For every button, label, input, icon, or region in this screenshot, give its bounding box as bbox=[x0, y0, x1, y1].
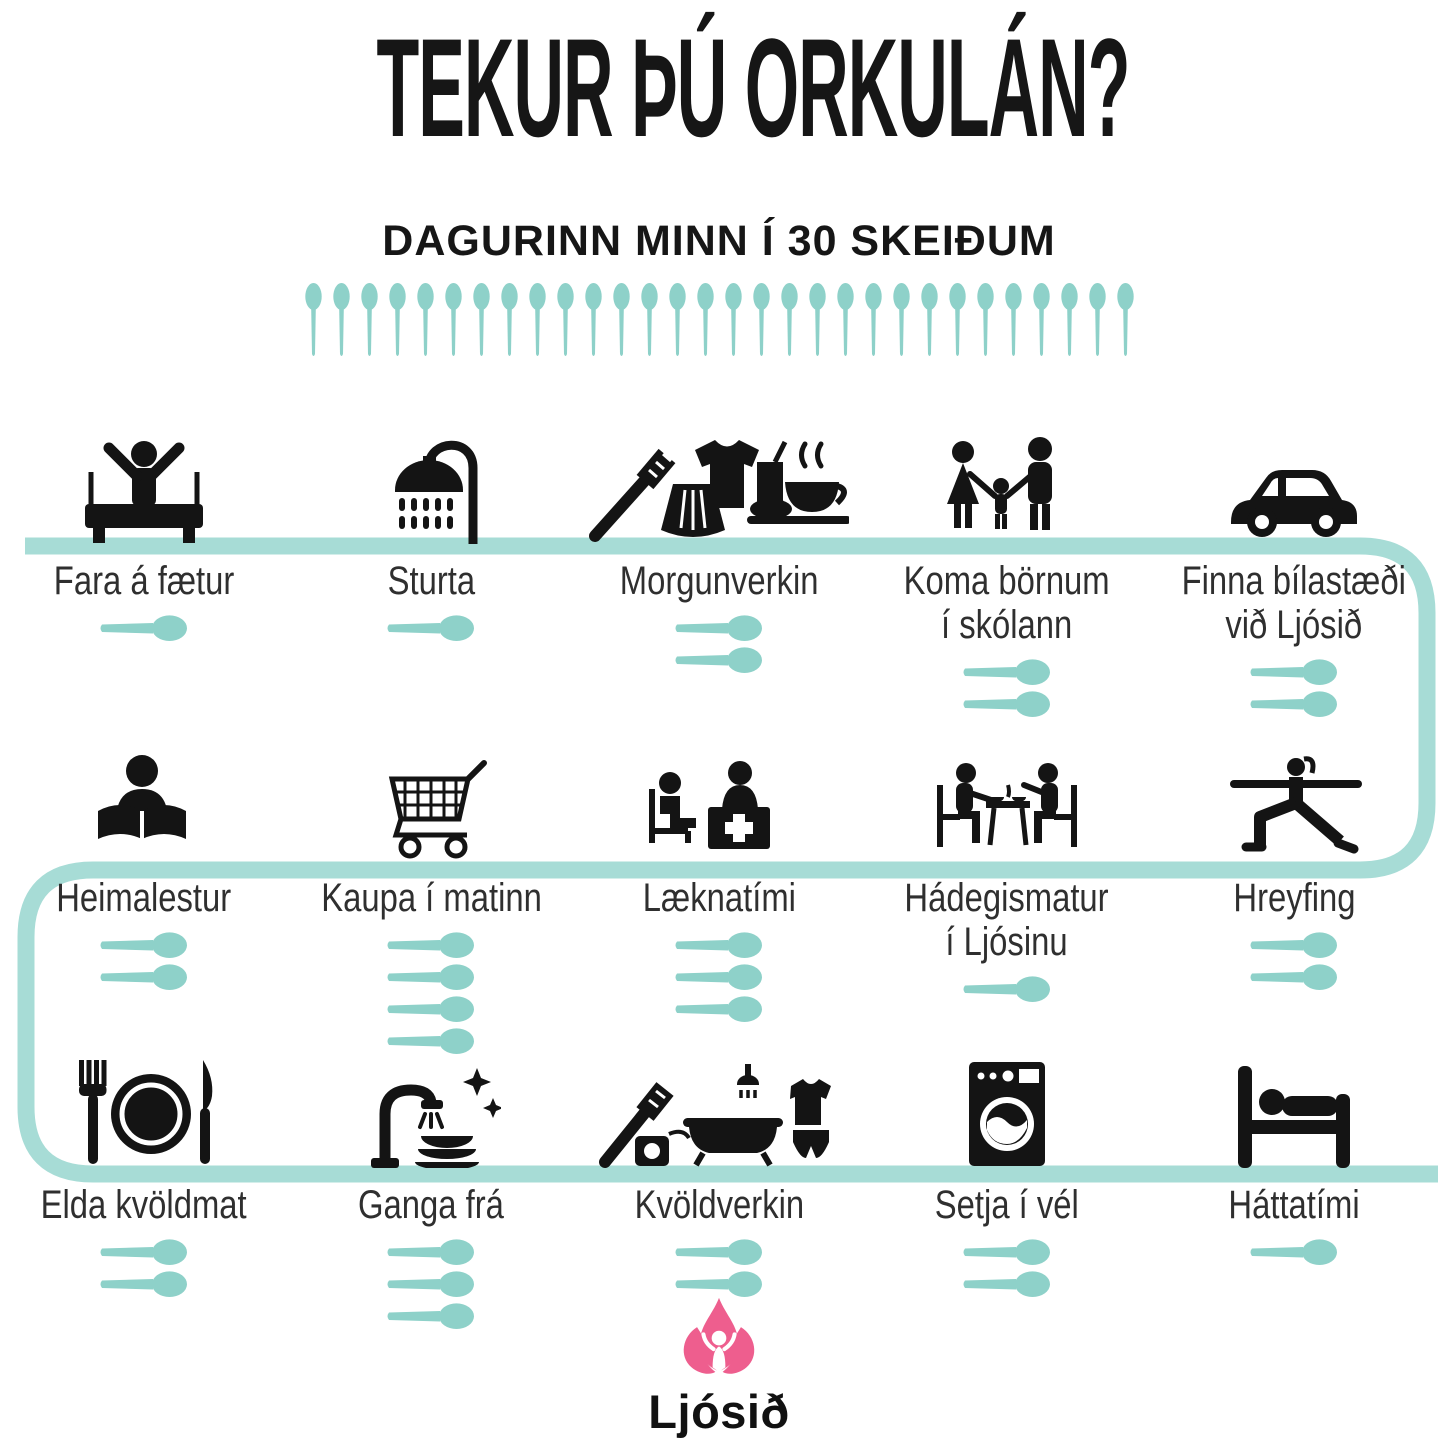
spoon-icon bbox=[387, 996, 475, 1023]
spoon-icon bbox=[921, 283, 938, 359]
page-title-text: TEKUR ÞÚ ORKULÁN? bbox=[376, 18, 1129, 158]
activity-item: Morgunverkin bbox=[575, 412, 863, 718]
activity-label: Ganga frá bbox=[358, 1183, 504, 1227]
spoon-icon bbox=[1089, 283, 1106, 359]
spoon-icon bbox=[697, 283, 714, 359]
spoon-icon bbox=[641, 283, 658, 359]
activity-label: Hádegismaturí Ljósinu bbox=[904, 876, 1108, 964]
activity-item: Sturta bbox=[288, 412, 576, 718]
spoon-icon bbox=[1250, 659, 1338, 686]
activity-label-line: Koma börnum bbox=[904, 559, 1110, 603]
activity-item: Elda kvöldmat bbox=[0, 1036, 288, 1330]
activity-label: Kaupa í matinn bbox=[321, 876, 542, 920]
wake-up-icon bbox=[81, 412, 207, 544]
spoon-icon bbox=[445, 283, 462, 359]
spoon-icon bbox=[753, 283, 770, 359]
spoon-icon bbox=[613, 283, 630, 359]
activity-label-line: Setja í vél bbox=[935, 1183, 1079, 1227]
spoon-count bbox=[675, 615, 763, 674]
shopping-cart-icon bbox=[370, 729, 492, 861]
activity-label-line: í Ljósinu bbox=[904, 920, 1108, 964]
family-icon bbox=[937, 412, 1077, 544]
spoon-icon bbox=[781, 283, 798, 359]
spoon-icon bbox=[387, 1271, 475, 1298]
activity-label-line: við Ljósið bbox=[1182, 603, 1406, 647]
spoon-icon bbox=[1117, 283, 1134, 359]
activity-item: Hreyfing bbox=[1150, 729, 1438, 1055]
activity-label: Setja í vél bbox=[935, 1183, 1079, 1227]
activity-label: Elda kvöldmat bbox=[41, 1183, 247, 1227]
car-icon bbox=[1226, 412, 1362, 544]
spoon-icon bbox=[1061, 283, 1078, 359]
spoon-icon bbox=[557, 283, 574, 359]
activity-label-line: Kaupa í matinn bbox=[321, 876, 542, 920]
activity-label: Sturta bbox=[388, 559, 476, 603]
page-title: TEKUR ÞÚ ORKULÁN? bbox=[0, 18, 1438, 158]
lunch-table-icon bbox=[932, 729, 1082, 861]
sleep-icon bbox=[1230, 1036, 1358, 1168]
activity-item: Kvöldverkin bbox=[575, 1036, 863, 1330]
spoon-icon bbox=[675, 615, 763, 642]
spoon-icon bbox=[361, 283, 378, 359]
infographic-canvas: TEKUR ÞÚ ORKULÁN? DAGURINN MINN Í 30 SKE… bbox=[0, 0, 1438, 1438]
activity-label: Koma börnumí skólann bbox=[904, 559, 1110, 647]
activity-label-line: Kvöldverkin bbox=[634, 1183, 804, 1227]
spoon-icon bbox=[963, 976, 1051, 1003]
spoon-icon bbox=[1033, 283, 1050, 359]
spoon-count bbox=[1250, 1239, 1338, 1266]
spoon-icon bbox=[963, 691, 1051, 718]
activity-item: Heimalestur bbox=[0, 729, 288, 1055]
spoon-icon bbox=[387, 615, 475, 642]
activity-item: Setja í vél bbox=[863, 1036, 1151, 1330]
spoon-icon bbox=[675, 1271, 763, 1298]
spoon-icon bbox=[675, 1239, 763, 1266]
spoon-icon bbox=[963, 659, 1051, 686]
spoon-count bbox=[963, 976, 1051, 1003]
flame-icon bbox=[673, 1296, 765, 1382]
activity-item: Koma börnumí skólann bbox=[863, 412, 1151, 718]
doctor-icon bbox=[644, 729, 794, 861]
activity-label-line: Ganga frá bbox=[358, 1183, 504, 1227]
spoon-icon bbox=[305, 283, 322, 359]
spoon-icon bbox=[669, 283, 686, 359]
activity-label: Háttatími bbox=[1229, 1183, 1360, 1227]
spoon-icon bbox=[585, 283, 602, 359]
spoon-icon bbox=[387, 1239, 475, 1266]
spoon-icon bbox=[473, 283, 490, 359]
spoon-count bbox=[387, 615, 475, 642]
spoon-icon bbox=[100, 964, 188, 991]
activity-label-line: Hreyfing bbox=[1233, 876, 1355, 920]
activity-label-line: Sturta bbox=[388, 559, 476, 603]
shower-icon bbox=[379, 412, 483, 544]
logo-text: Ljósið bbox=[648, 1384, 789, 1439]
activity-row-1: Fara á fæturSturtaMorgunverkinKoma börnu… bbox=[0, 412, 1438, 718]
spoon-icon bbox=[675, 647, 763, 674]
activity-item: Finna bílastæðivið Ljósið bbox=[1150, 412, 1438, 718]
spoon-icon bbox=[1005, 283, 1022, 359]
yoga-icon bbox=[1224, 729, 1364, 861]
spoon-icon bbox=[501, 283, 518, 359]
activity-label: Hreyfing bbox=[1233, 876, 1355, 920]
activity-label-line: Hádegismatur bbox=[904, 876, 1108, 920]
activity-label: Læknatími bbox=[642, 876, 795, 920]
activity-item: Ganga frá bbox=[288, 1036, 576, 1330]
spoon-count bbox=[1250, 659, 1338, 718]
spoon-icon bbox=[837, 283, 854, 359]
ljosid-logo: Ljósið bbox=[0, 1296, 1438, 1439]
spoon-icon bbox=[100, 615, 188, 642]
spoon-icon bbox=[949, 283, 966, 359]
activity-row-3: Elda kvöldmatGanga fráKvöldverkinSetja í… bbox=[0, 1036, 1438, 1330]
spoon-count bbox=[100, 1239, 188, 1298]
spoon-icon bbox=[100, 1239, 188, 1266]
activity-label-line: Finna bílastæði bbox=[1182, 559, 1406, 603]
spoon-count bbox=[963, 1239, 1051, 1298]
morning-routine-icon bbox=[589, 412, 849, 544]
spoon-icon bbox=[675, 932, 763, 959]
spoon-icon bbox=[963, 1239, 1051, 1266]
spoon-icon bbox=[1250, 932, 1338, 959]
activity-item: Hádegismaturí Ljósinu bbox=[863, 729, 1151, 1055]
reading-icon bbox=[84, 729, 204, 861]
spoon-icon bbox=[675, 964, 763, 991]
spoon-icon bbox=[417, 283, 434, 359]
activity-row-2: HeimalesturKaupa í matinnLæknatímiHádegi… bbox=[0, 729, 1438, 1055]
spoon-icon bbox=[100, 932, 188, 959]
activity-label-line: Heimalestur bbox=[56, 876, 231, 920]
activity-label: Heimalestur bbox=[56, 876, 231, 920]
spoon-icon bbox=[100, 1271, 188, 1298]
spoon-icon bbox=[1250, 1239, 1338, 1266]
spoon-icon bbox=[809, 283, 826, 359]
subtitle: DAGURINN MINN Í 30 SKEIÐUM bbox=[0, 217, 1438, 266]
spoon-icon bbox=[529, 283, 546, 359]
activity-label-line: Morgunverkin bbox=[620, 559, 819, 603]
spoon-count bbox=[963, 659, 1051, 718]
activity-label: Fara á fætur bbox=[54, 559, 234, 603]
evening-routine-icon bbox=[599, 1036, 839, 1168]
spoon-count bbox=[675, 932, 763, 1023]
activity-label-line: Háttatími bbox=[1229, 1183, 1360, 1227]
spoon-icon bbox=[1250, 964, 1338, 991]
spoon-icon bbox=[963, 1271, 1051, 1298]
spoon-icon bbox=[675, 996, 763, 1023]
activity-label-line: Fara á fætur bbox=[54, 559, 234, 603]
activity-item: Læknatími bbox=[575, 729, 863, 1055]
washing-machine-icon bbox=[953, 1036, 1061, 1168]
activity-item: Háttatími bbox=[1150, 1036, 1438, 1330]
dishes-icon bbox=[361, 1036, 501, 1168]
spoon-counter-row bbox=[0, 283, 1438, 359]
spoon-icon bbox=[389, 283, 406, 359]
activity-item: Fara á fætur bbox=[0, 412, 288, 718]
spoon-count bbox=[100, 615, 188, 642]
spoon-icon bbox=[977, 283, 994, 359]
spoon-icon bbox=[725, 283, 742, 359]
spoon-icon bbox=[387, 932, 475, 959]
spoon-icon bbox=[387, 964, 475, 991]
activity-label: Morgunverkin bbox=[620, 559, 819, 603]
spoon-icon bbox=[893, 283, 910, 359]
spoon-count bbox=[100, 932, 188, 991]
spoon-icon bbox=[865, 283, 882, 359]
activity-label-line: Læknatími bbox=[642, 876, 795, 920]
activity-label: Finna bílastæðivið Ljósið bbox=[1182, 559, 1406, 647]
spoon-icon bbox=[1250, 691, 1338, 718]
spoon-count bbox=[675, 1239, 763, 1298]
activity-label: Kvöldverkin bbox=[634, 1183, 804, 1227]
spoon-icon bbox=[333, 283, 350, 359]
dinner-plate-icon bbox=[69, 1036, 219, 1168]
activity-item: Kaupa í matinn bbox=[288, 729, 576, 1055]
spoon-count bbox=[1250, 932, 1338, 991]
activity-label-line: Elda kvöldmat bbox=[41, 1183, 247, 1227]
activity-label-line: í skólann bbox=[904, 603, 1110, 647]
